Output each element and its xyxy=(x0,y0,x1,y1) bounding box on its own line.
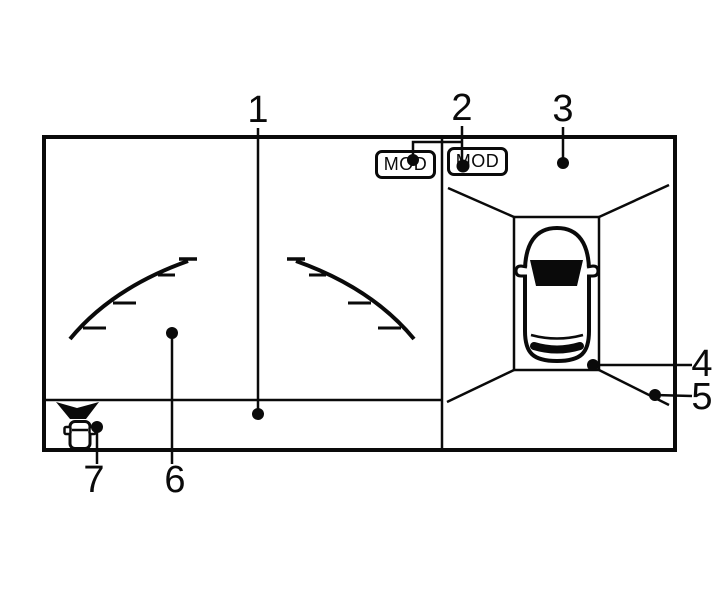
callout-1-label: 1 xyxy=(247,91,268,129)
callout-5-dot xyxy=(649,389,661,401)
callout-4-dot xyxy=(587,359,599,371)
car-mirror-left xyxy=(516,266,527,276)
callout-6-label: 6 xyxy=(164,461,185,499)
mod-badge-right: MOD xyxy=(447,147,508,176)
callout-7-dot xyxy=(91,421,103,433)
callout-3-label: 3 xyxy=(552,90,573,128)
parking-space-box xyxy=(447,185,669,405)
car-windshield xyxy=(530,260,583,286)
callout-5-line xyxy=(655,395,692,396)
car-rear-bumper xyxy=(534,346,580,350)
car-top-view-icon xyxy=(516,228,598,361)
mod-badge-left-label: MOD xyxy=(384,154,428,175)
callout-2-label: 2 xyxy=(451,89,472,127)
sonar-car-mirror-left xyxy=(65,427,71,434)
mod-badge-left: MOD xyxy=(375,150,436,179)
rear-distance-guideline-right xyxy=(287,259,414,339)
callout-5-label: 5 xyxy=(691,378,712,416)
sonar-beam-shape xyxy=(56,402,99,419)
callout-1-dot xyxy=(252,408,264,420)
around-view-monitor-diagram: MOD MOD 1 2 3 4 5 6 7 xyxy=(0,0,720,591)
car-mirror-right xyxy=(587,266,598,276)
sonar-car-mirror-right xyxy=(90,427,96,434)
sonar-beam-car-icon xyxy=(56,402,99,449)
rear-distance-guideline-left xyxy=(70,259,197,339)
callout-7-label: 7 xyxy=(83,461,104,499)
car-rear-window-line xyxy=(531,335,583,339)
callout-dots xyxy=(91,154,661,433)
callout-6-dot xyxy=(166,327,178,339)
mod-badge-right-label: MOD xyxy=(456,151,500,172)
sonar-car-body xyxy=(70,422,90,449)
diagram-line-art xyxy=(0,0,720,591)
callout-3-dot xyxy=(557,157,569,169)
screen-border xyxy=(44,137,675,450)
